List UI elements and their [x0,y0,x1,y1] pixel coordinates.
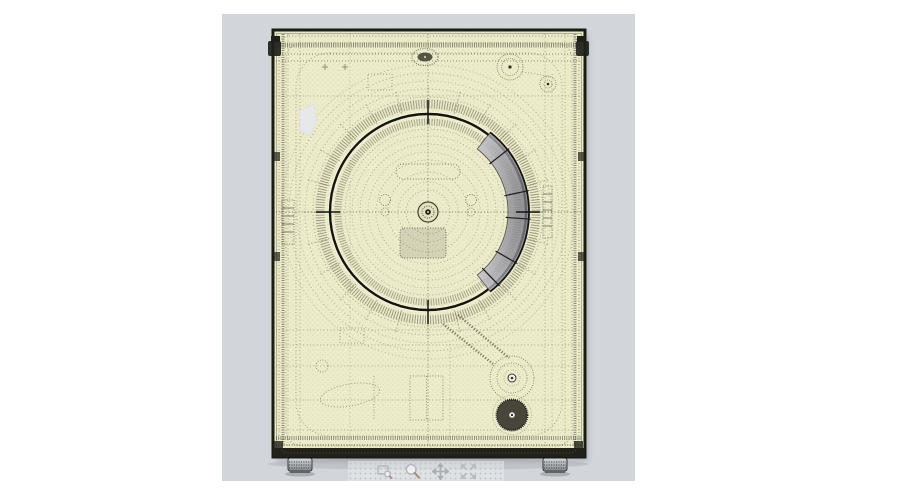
machine-drawing [268,30,589,477]
cad-viewport [222,14,635,481]
zoom-window-icon [376,463,393,480]
zoom-window-button[interactable] [376,463,393,480]
fit-view-button[interactable] [460,463,477,480]
zoom-button[interactable] [404,463,421,480]
drum-hub [418,202,438,222]
pan-button[interactable] [432,463,449,480]
view-toolbar [348,461,504,481]
pan-icon [432,463,449,480]
app-window [0,0,900,500]
model-canvas[interactable] [222,14,635,481]
zoom-icon [404,463,421,480]
fit-view-icon [460,463,477,480]
